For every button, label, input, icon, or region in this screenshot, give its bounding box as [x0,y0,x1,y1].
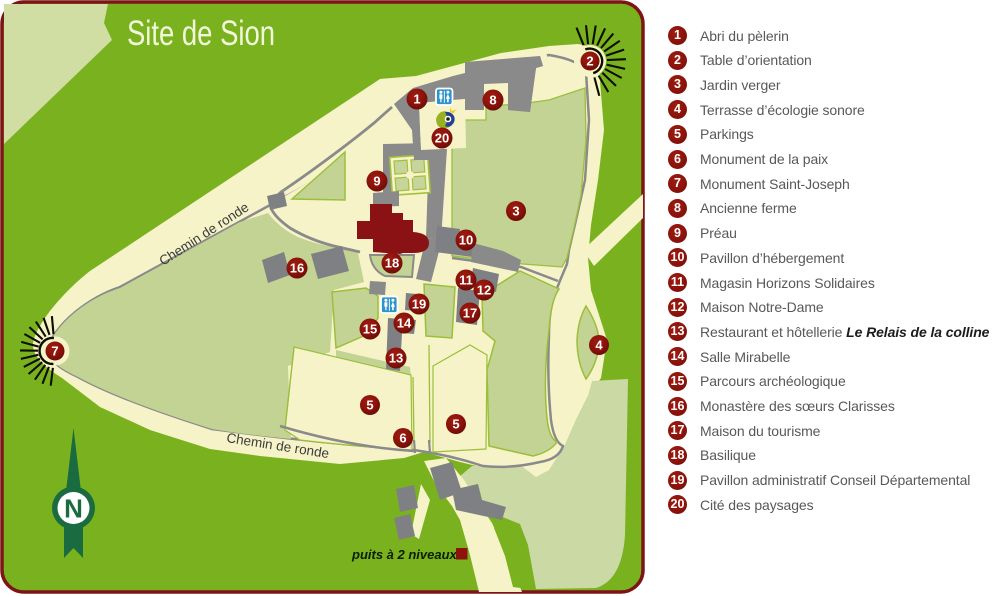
svg-text:15: 15 [363,322,377,337]
svg-text:4: 4 [595,338,603,353]
svg-text:11: 11 [459,273,473,288]
svg-text:2: 2 [586,54,593,69]
svg-text:N: N [64,494,83,524]
svg-text:puits à 2 niveaux: puits à 2 niveaux [351,547,458,562]
svg-text:7: 7 [51,344,58,359]
svg-text:12: 12 [477,283,491,298]
svg-text:13: 13 [389,351,403,366]
svg-text:Site de Sion: Site de Sion [127,14,275,53]
svg-text:9: 9 [373,174,380,189]
svg-text:18: 18 [385,256,399,271]
svg-text:19: 19 [412,297,426,312]
svg-text:10: 10 [459,233,473,248]
svg-text:8: 8 [489,93,496,108]
svg-text:6: 6 [399,431,406,446]
svg-text:1: 1 [413,92,420,107]
svg-text:3: 3 [512,204,519,219]
svg-text:14: 14 [397,316,412,331]
svg-text:5: 5 [452,417,459,432]
svg-text:16: 16 [290,261,304,276]
svg-text:5: 5 [366,398,373,413]
svg-text:20: 20 [435,131,449,146]
svg-text:17: 17 [463,306,477,321]
